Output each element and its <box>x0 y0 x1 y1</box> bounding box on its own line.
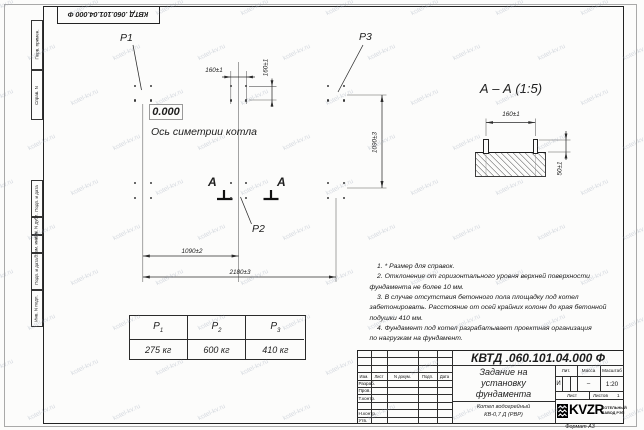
kvzr-logo-sub1: КОТЕЛЬНЫЙ <box>602 406 627 410</box>
col-dokum: N докум. <box>387 374 418 379</box>
scale-label: Масштаб <box>600 368 624 373</box>
row-tkontr: Т.контр. <box>359 396 376 401</box>
dim-depth: 1090±3 <box>372 127 379 157</box>
anchor-bolt-dot <box>150 197 152 199</box>
row-utv: Утв. <box>359 418 368 423</box>
note-line: забетонировать. Расстояние от осей крайн… <box>370 303 624 313</box>
kvzr-logo-icon <box>557 404 568 418</box>
col-list: Лист <box>371 374 387 379</box>
section-letter-left: А <box>208 175 217 189</box>
col-data: Дата <box>437 374 452 379</box>
scale-value: 1:20 <box>600 381 624 388</box>
note-line: 4. Фундамент под котел разрабатывает про… <box>370 324 624 334</box>
load-point-label-p3: P3 <box>359 31 372 43</box>
load-table-header-p2: P2 <box>188 316 246 340</box>
dim-half-span: 1090±2 <box>176 248 208 255</box>
product-name: Котел водогрейный КВ-0,7 Д (РВР) <box>452 404 555 419</box>
sheets-label: Листов <box>593 393 608 398</box>
elevation-value: 0.000 <box>152 106 180 118</box>
anchor-bolt-right <box>533 139 539 154</box>
anchor-bolt-dot <box>343 99 345 101</box>
note-line: 1. * Размер для справок. <box>370 262 624 272</box>
doc-title: Задание на установку фундамента <box>452 367 555 400</box>
section-cut-marks <box>217 190 279 199</box>
kvzr-logo-text: KVZR <box>569 402 604 417</box>
format-label: Формат А3 <box>545 424 615 430</box>
load-table-header-p3: P3 <box>246 316 304 340</box>
anchor-bolt-dot <box>230 197 232 199</box>
anchor-bolt-dot <box>134 197 136 199</box>
mass-value: – <box>577 381 600 387</box>
row-nkontr: Н.контр. <box>359 411 377 416</box>
anchor-bolt-dot <box>230 99 232 101</box>
mass-label: Масса <box>577 368 600 373</box>
section-view-title: А – А (1:5) <box>470 81 552 96</box>
load-point-label-p2: P2 <box>252 223 265 235</box>
col-podp: Подп. <box>418 374 437 379</box>
anchor-bolt-dot <box>343 197 345 199</box>
kvzr-logo: KVZR КОТЕЛЬНЫЙ ЗАВОД РЭП <box>557 402 623 423</box>
note-line: по нагрузкам на фундамент. <box>370 334 624 344</box>
concrete-block <box>475 152 546 177</box>
load-table-value-p1: 275 кг <box>130 340 188 359</box>
anchor-bolt-dot <box>150 85 152 87</box>
elevation-mark: 0.000 <box>149 104 183 121</box>
lit-value: И <box>555 381 562 387</box>
axis-caption: Ось симетрии котла <box>151 126 257 138</box>
dim-bolt-pitch-h: 160±1 <box>201 67 227 74</box>
load-point-label-p1: P1 <box>120 32 133 44</box>
note-line: фундамента не более 10 мм. <box>370 283 624 293</box>
dim-section-pitch: 160±1 <box>498 111 524 118</box>
anchor-bolt-left <box>483 139 489 154</box>
anchor-bolt-dot <box>134 99 136 101</box>
dim-section-height: 50±1 <box>557 156 564 180</box>
row-razrab: Разраб. <box>359 381 376 386</box>
doc-number: КВТД .060.101.04.000 Ф <box>452 351 624 365</box>
section-letter-right: А <box>277 175 286 189</box>
kvzr-logo-sub2: ЗАВОД РЭП <box>602 411 624 415</box>
drawing-sheet: Перв. примен. Справ. N Подп. и дата Инв.… <box>0 0 644 430</box>
note-line: подушки 410 мм. <box>370 314 624 324</box>
sheet-label: Лист <box>555 393 589 398</box>
load-table-header-p1: P1 <box>130 316 188 340</box>
note-line: 3. В случае отсутствия бетонного пола пл… <box>370 293 624 303</box>
load-table-value-p2: 600 кг <box>188 340 246 359</box>
dim-full-span: 2180±3 <box>224 269 256 276</box>
note-line: 2. Отклонение от горизонтального уровня … <box>370 272 624 282</box>
anchor-bolt-dot <box>150 99 152 101</box>
load-table: P1 P2 P3 275 кг 600 кг 410 кг <box>129 315 306 360</box>
sheets-value: 1 <box>617 393 620 398</box>
dim-bolt-pitch-v: 160±1 <box>262 55 269 79</box>
lit-label: Лит. <box>555 368 577 373</box>
row-prov: Пров. <box>359 388 371 393</box>
load-table-value-p3: 410 кг <box>246 340 304 359</box>
col-izm: Изм. <box>357 374 371 379</box>
notes-block: 1. * Размер для справок. 2. Отклонение о… <box>370 262 624 345</box>
anchor-bolt-dot <box>327 99 329 101</box>
